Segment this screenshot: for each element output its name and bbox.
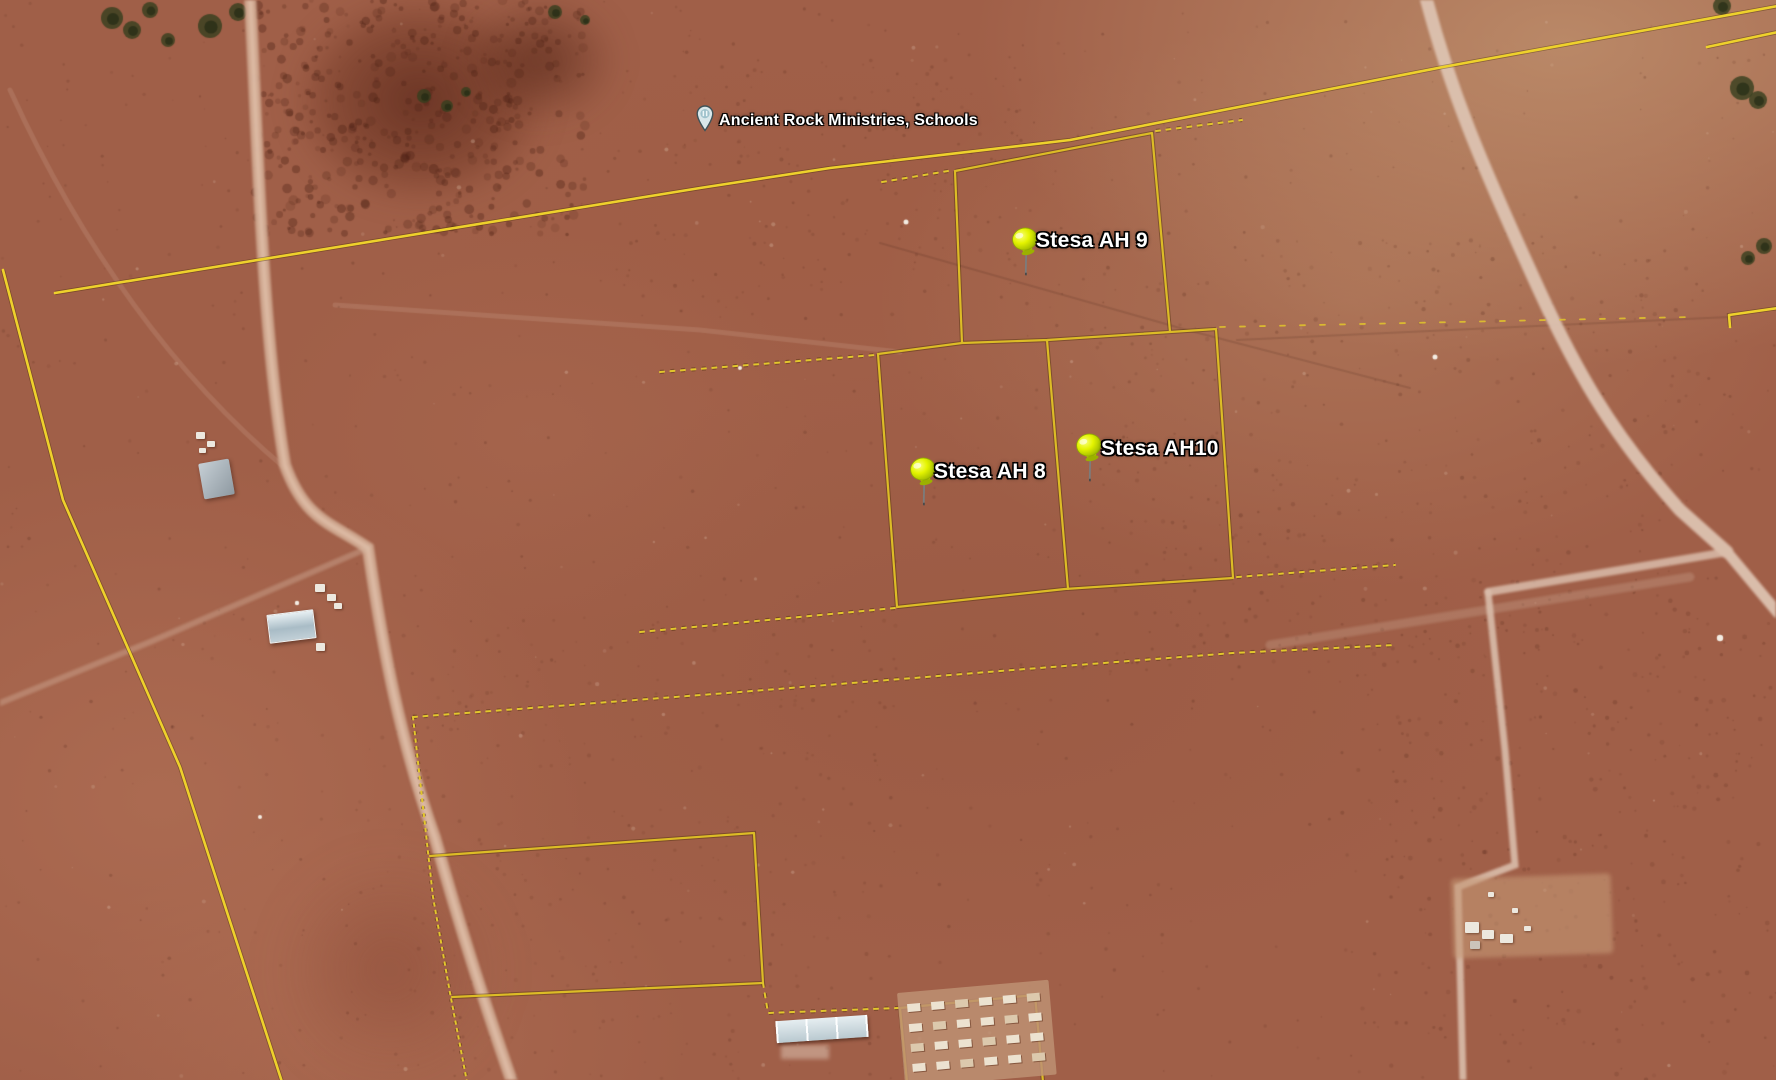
farm-structure xyxy=(1512,908,1518,913)
compound-structure xyxy=(933,1021,947,1030)
compound-structure xyxy=(1030,1032,1044,1041)
housing-compound xyxy=(897,980,1057,1080)
compound-structure xyxy=(1004,1015,1018,1024)
compound-structure xyxy=(984,1057,998,1066)
farm-structure xyxy=(1524,926,1531,931)
compound-structure xyxy=(1006,1035,1020,1044)
building-small xyxy=(315,584,325,592)
compound-structure xyxy=(957,1019,971,1028)
place-balloon-icon xyxy=(696,104,714,132)
building-warehouse xyxy=(266,609,316,644)
pin-label-stesa-ah-9[interactable]: Stesa AH 9 xyxy=(1036,230,1148,251)
building-small xyxy=(199,448,206,453)
farm-structure xyxy=(1500,934,1513,943)
compound-structure xyxy=(909,1023,923,1032)
farm-structure xyxy=(1465,922,1479,933)
pin-label-stesa-ah-8[interactable]: Stesa AH 8 xyxy=(934,461,1046,482)
building-small xyxy=(327,594,336,601)
building-foundation xyxy=(781,1045,829,1059)
compound-structure xyxy=(934,1041,948,1050)
pin-label-stesa-ah-10[interactable]: Stesa AH10 xyxy=(1101,438,1219,459)
compound-structure xyxy=(912,1063,926,1072)
compound-structure xyxy=(931,1001,945,1010)
compound-structure xyxy=(936,1061,950,1070)
building-small xyxy=(334,603,342,609)
place-marker-ancient-rock[interactable] xyxy=(696,104,714,137)
farm-structure xyxy=(1470,941,1480,949)
building-shed xyxy=(198,459,235,500)
compound-structure xyxy=(979,997,993,1006)
compound-structure xyxy=(980,1017,994,1026)
compound-structure xyxy=(958,1039,972,1048)
compound-structure xyxy=(982,1037,996,1046)
building-small xyxy=(207,441,215,447)
place-label[interactable]: Ancient Rock Ministries, Schools xyxy=(719,113,978,129)
building-small xyxy=(316,643,325,651)
compound-structure xyxy=(1027,993,1041,1002)
compound-structure xyxy=(1032,1052,1046,1061)
compound-structure xyxy=(960,1059,974,1068)
compound-structure xyxy=(1003,995,1017,1004)
compound-structure xyxy=(1028,1013,1042,1022)
farm-structure xyxy=(1482,930,1494,939)
compound-structure xyxy=(907,1003,921,1012)
compound-structure xyxy=(955,999,969,1008)
satellite-map[interactable]: Ancient Rock Ministries, Schools Stesa A… xyxy=(0,0,1776,1080)
farm-structure xyxy=(1488,892,1494,897)
compound-structure xyxy=(1008,1054,1022,1063)
compound-structure xyxy=(910,1043,924,1052)
building-small xyxy=(196,432,205,439)
